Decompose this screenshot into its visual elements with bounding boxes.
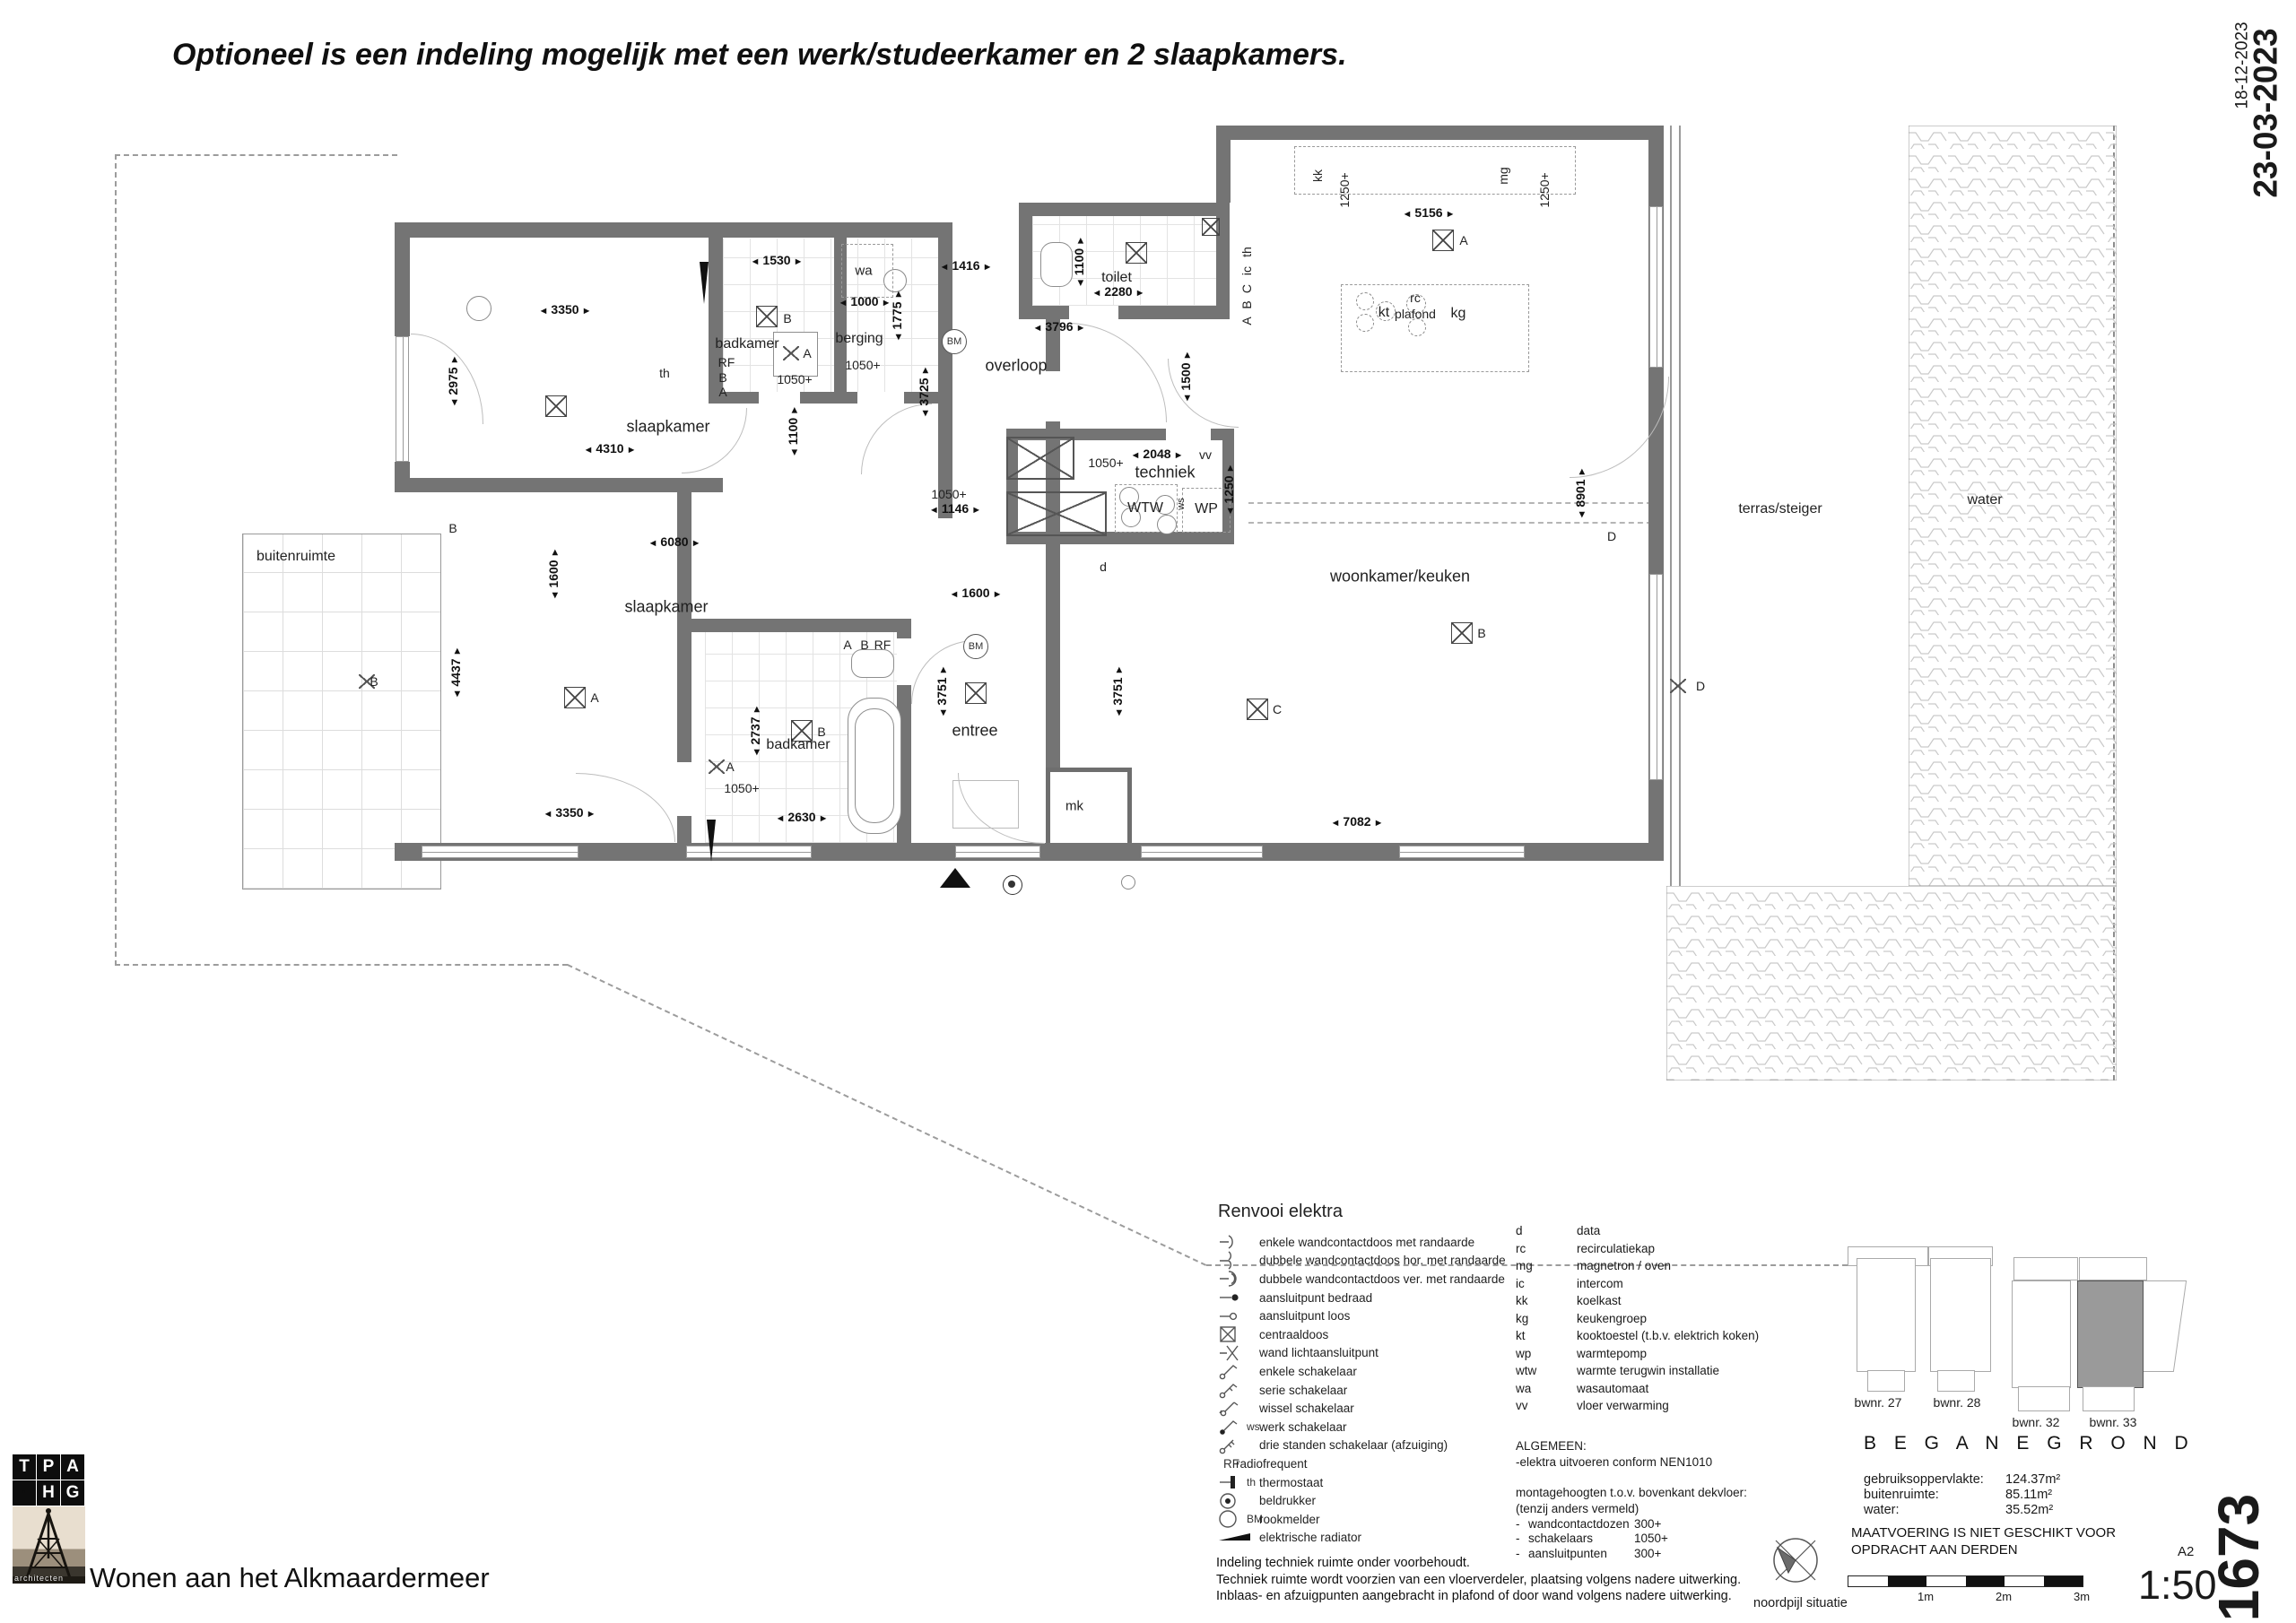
- legend-item-label: werk schakelaar: [1259, 1420, 1347, 1434]
- dimension: 2975: [446, 354, 460, 407]
- scale-bar-segment: [2044, 1576, 2083, 1586]
- legend-item-label: wissel schakelaar: [1259, 1402, 1354, 1415]
- room-label-terras: terras/steiger: [1738, 501, 1822, 517]
- abbreviation-row: rc recirculatiekap: [1516, 1240, 1812, 1258]
- water-hatch: [1666, 886, 2117, 1081]
- bwnr-label: bwnr. 32: [2013, 1415, 2060, 1429]
- area-value: 85.11m²: [2005, 1488, 2052, 1503]
- element: [1220, 1511, 1236, 1527]
- wall: [395, 222, 952, 238]
- element: [1218, 1473, 1248, 1491]
- element: [1218, 1233, 1248, 1251]
- area-label: water:: [1864, 1503, 2005, 1518]
- element: [1221, 1327, 1235, 1341]
- dimension: 2737: [748, 704, 762, 757]
- centraaldoos-icon: [545, 395, 567, 417]
- logo-letter: H: [37, 1480, 60, 1506]
- area-label: buitenruimte:: [1864, 1488, 2005, 1503]
- radiator-icon: [1218, 1531, 1259, 1545]
- element: [1220, 1236, 1232, 1248]
- window: [396, 336, 409, 462]
- toilet-fixture: [1040, 242, 1073, 287]
- situatie-block: [2013, 1257, 2078, 1280]
- scale-bar-segment: [1888, 1576, 1927, 1586]
- element: [1220, 1393, 1224, 1397]
- switch-label: B: [448, 521, 457, 535]
- bathtub-inner: [855, 708, 894, 823]
- height-label: 1050+: [777, 372, 812, 386]
- situatie-block: [2012, 1280, 2071, 1388]
- window: [1141, 846, 1263, 858]
- abbreviation-code: rc: [1516, 1242, 1577, 1255]
- window: [422, 846, 578, 858]
- water-hatch: [1909, 126, 2117, 886]
- switch-3pos-icon: [1218, 1436, 1259, 1455]
- element: [1231, 1313, 1237, 1319]
- element: [1218, 1307, 1248, 1325]
- boundary-line: [115, 154, 117, 966]
- dimension: 2048: [1130, 447, 1183, 461]
- centraaldoos-label: A: [1459, 233, 1467, 247]
- legend-item-label: dubbele wandcontactdoos ver. met randaar…: [1259, 1272, 1505, 1286]
- thermostat-label: th: [1239, 247, 1254, 257]
- dash-ch: -: [1516, 1516, 1528, 1532]
- element: [1218, 1380, 1248, 1400]
- legend-item-label: rookmelder: [1259, 1513, 1320, 1526]
- scale-bar-segment: [1926, 1576, 1966, 1586]
- terrace-edge: [1670, 126, 1672, 886]
- legend-title: Renvooi elektra: [1218, 1202, 1837, 1222]
- situatie-unit-33-highlight: [2077, 1280, 2144, 1388]
- switch-label: C: [1239, 284, 1254, 293]
- window: [1649, 206, 1663, 368]
- dimension: 6080: [648, 534, 700, 549]
- legend-item-label: enkele wandcontactdoos met randaarde: [1259, 1236, 1474, 1249]
- room-label-badkamer1: badkamer: [715, 336, 778, 352]
- shaft-icon: [1006, 491, 1107, 536]
- legend-item-label: aansluitpunt loos: [1259, 1309, 1350, 1323]
- element: [1220, 1375, 1224, 1379]
- boundary-line: [567, 964, 1206, 1266]
- dimension: 3796: [1032, 319, 1085, 334]
- abbreviation-row: wa wasautomaat: [1516, 1380, 1812, 1398]
- door-opening: [759, 392, 800, 404]
- scale-bar-segment: [1848, 1576, 1888, 1586]
- wall-light-label: D: [1696, 679, 1705, 693]
- smoke-detector-icon: BM: [942, 329, 967, 354]
- door-swing: [1067, 323, 1167, 422]
- switch-label: A: [1239, 317, 1254, 325]
- room-label-badkamer2: badkamer: [766, 737, 830, 753]
- centraaldoos-icon: [1126, 242, 1147, 264]
- switch-label: B: [1239, 300, 1254, 308]
- door-opening: [1069, 306, 1118, 319]
- switch-label: B: [860, 638, 868, 652]
- center-line: [1248, 522, 1652, 524]
- disclaimer: MAATVOERING IS NIET GESCHIKT VOOR OPDRAC…: [1851, 1524, 2116, 1558]
- marker-dot: [1121, 875, 1135, 890]
- element: [1218, 1509, 1248, 1529]
- dimension: 3751: [935, 664, 949, 717]
- abbreviation-code: ic: [1516, 1277, 1577, 1290]
- footnotes: Indeling techniek ruimte onder voorbehou…: [1216, 1555, 1741, 1605]
- element: [1218, 1251, 1248, 1271]
- legend-item-label: radiofrequent: [1236, 1457, 1308, 1471]
- abbreviation-code: kg: [1516, 1312, 1577, 1325]
- intercom-label: ic: [1239, 266, 1254, 275]
- dimension: 3350: [538, 302, 591, 317]
- area-label: gebruiksoppervlakte:: [1864, 1472, 2005, 1488]
- abbreviation-row: vv vloer verwarming: [1516, 1397, 1812, 1415]
- abbreviation-code: kk: [1516, 1294, 1577, 1307]
- wall-light-icon: [783, 346, 799, 360]
- legend-item-label: centraaldoos: [1259, 1328, 1328, 1341]
- abbreviation-meaning: koelkast: [1577, 1294, 1622, 1307]
- legend-item-label: thermostaat: [1259, 1476, 1323, 1489]
- switch-series-icon: [1218, 1380, 1259, 1400]
- situatie-block: [2083, 1386, 2135, 1411]
- switch-label: RF: [718, 355, 735, 369]
- room-label-woonkamer: woonkamer/keuken: [1330, 568, 1470, 586]
- dimension: 5156: [1402, 205, 1455, 220]
- door-swing: [958, 773, 1045, 844]
- room-label-slaapkamer1: slaapkamer: [626, 418, 709, 437]
- dimension: 1100: [1072, 236, 1086, 288]
- legend-item-label: beldrukker: [1259, 1494, 1316, 1507]
- dimension: 8901: [1573, 466, 1587, 519]
- abbreviation-code: vv: [1516, 1399, 1577, 1412]
- wall-light-icon: [1218, 1344, 1259, 1362]
- dimension: 1416: [939, 258, 992, 273]
- logo-letter: T: [13, 1454, 36, 1480]
- element: [1218, 1436, 1248, 1455]
- centraaldoos-label: B: [783, 311, 791, 325]
- height-label: 1250+: [1537, 172, 1552, 207]
- bwnr-label: bwnr. 28: [1934, 1395, 1981, 1410]
- dimension: 1600: [546, 547, 561, 600]
- abbreviation-code: d: [1516, 1224, 1577, 1237]
- scale-bar-label: 1m: [1918, 1590, 1934, 1603]
- centraaldoos-icon: [1432, 230, 1454, 251]
- room-label-water: water: [1967, 492, 2002, 508]
- abbreviation-row: kt kooktoestel (t.b.v. elektrich koken): [1516, 1327, 1812, 1345]
- dimension: 1146: [929, 501, 981, 516]
- kitchen-code-kg: kg: [1451, 306, 1466, 322]
- dimension: 3751: [1110, 664, 1125, 717]
- element: [46, 1508, 51, 1514]
- dimension: 2280: [1091, 284, 1144, 299]
- abbreviation-meaning: intercom: [1577, 1277, 1623, 1290]
- dimension: 1530: [750, 253, 803, 267]
- switch-label: A: [718, 385, 726, 399]
- kitchen-code-kt: kt: [1378, 305, 1389, 321]
- element: [1516, 1470, 1747, 1485]
- element: [1225, 1498, 1231, 1504]
- cooktop-burner: [1356, 314, 1374, 332]
- element: [1231, 1476, 1235, 1488]
- abbreviation-code: mg: [1516, 1259, 1577, 1272]
- dimension: 1000: [838, 294, 891, 308]
- abbreviation-meaning: vloer verwarming: [1577, 1399, 1669, 1412]
- centraaldoos-icon: [1247, 699, 1268, 720]
- room-label-overloop: overloop: [985, 357, 1047, 376]
- legend-item-label: serie schakelaar: [1259, 1384, 1347, 1397]
- element: [1218, 1325, 1248, 1343]
- element: [1224, 1421, 1237, 1430]
- element: OPDRACHT AAN DERDEN: [1851, 1541, 2116, 1558]
- abbreviation-meaning: warmtepomp: [1577, 1347, 1647, 1360]
- north-compass-icon: [1769, 1533, 1822, 1587]
- centraaldoos-label: C: [1273, 702, 1282, 716]
- architect-logo: TPA ·HG architecten: [13, 1454, 86, 1584]
- wall-light-label: A: [726, 759, 734, 774]
- element: [1218, 1344, 1248, 1362]
- element: TPA: [13, 1454, 86, 1480]
- area-row: gebruiksoppervlakte: 124.37m²: [1864, 1472, 2060, 1488]
- project-name: Wonen aan het Alkmaardermeer: [90, 1562, 490, 1594]
- situatie-block: [2018, 1386, 2070, 1411]
- abbreviation-code: kt: [1516, 1329, 1577, 1342]
- dimension: 1600: [949, 586, 1002, 600]
- wall: [395, 238, 410, 336]
- wall-light-label: B: [370, 674, 378, 689]
- room-label-mk: mk: [1065, 799, 1083, 814]
- dimension: 3350: [543, 805, 596, 820]
- element: [1218, 1361, 1248, 1381]
- abbreviation-row: d data: [1516, 1222, 1812, 1240]
- kitchen-code-kk: kk: [1310, 169, 1325, 182]
- kitchen-code-rc: rc: [1410, 291, 1421, 305]
- boundary-line: [115, 964, 568, 966]
- door-opening: [1166, 429, 1211, 440]
- abbreviation-meaning: wasautomaat: [1577, 1382, 1648, 1395]
- wall: [1019, 216, 1032, 319]
- door-opening: [857, 392, 904, 404]
- floorplan-sheet: { "title": "Optioneel is een indeling mo…: [0, 0, 2296, 1623]
- wall: [1216, 126, 1664, 140]
- element: [1218, 1491, 1248, 1511]
- wtw-duct: [1157, 515, 1177, 534]
- dimension: 2630: [775, 810, 828, 824]
- centraaldoos-icon: [965, 682, 987, 704]
- window: [686, 846, 812, 858]
- tower-silhouette-icon: [13, 1506, 85, 1584]
- footnote: Inblaas- en afzuigpunten aangebracht in …: [1216, 1588, 1741, 1605]
- radiator-icon: [700, 262, 709, 304]
- scale-bar-segment: [2005, 1576, 2044, 1586]
- height-label: 1250+: [1337, 172, 1352, 207]
- kitchen-code-mg: mg: [1496, 167, 1510, 184]
- bwnr-label: bwnr. 27: [1855, 1395, 1902, 1410]
- area-table: gebruiksoppervlakte: 124.37m² buitenruim…: [1864, 1472, 2060, 1518]
- wall: [1019, 306, 1230, 319]
- wall: [1019, 203, 1230, 216]
- abbreviation-row: kk koelkast: [1516, 1292, 1812, 1310]
- room-label-entree: entree: [952, 722, 997, 741]
- footnote: Indeling techniek ruimte onder voorbehou…: [1216, 1555, 1741, 1572]
- logo-letter: P: [37, 1454, 60, 1480]
- window: [1399, 846, 1525, 858]
- general-line: -elektra uitvoeren conform NEN1010: [1516, 1454, 1747, 1471]
- situatie-block: [1930, 1258, 1991, 1372]
- element: [1218, 1270, 1248, 1288]
- switch-change-icon: [1218, 1399, 1259, 1419]
- room-label-slaapkamer2: slaapkamer: [624, 598, 708, 617]
- wall: [1216, 140, 1231, 203]
- data-point-label: d: [1100, 560, 1107, 574]
- element: [48, 1514, 70, 1578]
- area-value: 35.52m²: [2005, 1503, 2053, 1518]
- height-label: 1050+: [845, 358, 880, 372]
- situatie-block: [2079, 1257, 2147, 1280]
- general-notes: ALGEMEEN: -elektra uitvoeren conform NEN…: [1516, 1438, 1747, 1561]
- dash-ch: -: [1516, 1531, 1528, 1547]
- socket-double-h-icon: [1218, 1251, 1259, 1271]
- scale-bar-segment: [1966, 1576, 2005, 1586]
- area-row: water: 35.52m²: [1864, 1503, 2060, 1518]
- area-value: 124.37m²: [2005, 1472, 2060, 1488]
- abbreviation-meaning: warmte terugwin installatie: [1577, 1364, 1719, 1377]
- switch-label: A: [843, 638, 851, 652]
- kitchen-code-plafond: plafond: [1395, 307, 1436, 321]
- height-row: - schakelaars 1050+: [1516, 1532, 1747, 1547]
- abbreviation-meaning: data: [1577, 1224, 1600, 1237]
- cooktop-burner: [1356, 292, 1374, 310]
- abbreviation-code: wp: [1516, 1347, 1577, 1360]
- element: [1666, 886, 2117, 1081]
- switch-label: B: [718, 370, 726, 385]
- wall: [709, 392, 947, 404]
- wp-label: WP: [1195, 501, 1218, 517]
- dimension: 1250: [1222, 463, 1236, 516]
- wall: [1046, 544, 1060, 769]
- abbreviation-code: wa: [1516, 1382, 1577, 1395]
- vv-label: vv: [1199, 447, 1212, 462]
- point-wired-icon: [1218, 1289, 1259, 1306]
- abbreviation-row: kg keukengroep: [1516, 1310, 1812, 1328]
- abbreviation-meaning: magnetron / oven: [1577, 1259, 1671, 1272]
- situatie-block: [1867, 1370, 1905, 1392]
- height-item-label: wandcontactdozen: [1528, 1516, 1634, 1532]
- general-heading: ALGEMEEN:: [1516, 1438, 1747, 1454]
- wall-light-icon: [709, 759, 725, 774]
- boundary-line: [115, 154, 397, 156]
- point-empty-icon: [1218, 1307, 1259, 1325]
- element: [1218, 1399, 1248, 1419]
- dimension: 1500: [1178, 350, 1193, 403]
- room-label-wa: wa: [855, 264, 872, 279]
- switch-single-icon: [1218, 1361, 1259, 1381]
- center-line: [1248, 502, 1652, 504]
- legend-item-label: wand lichtaansluitpunt: [1259, 1346, 1378, 1359]
- centraaldoos-label: A: [590, 690, 598, 705]
- height-label: 1050+: [724, 781, 759, 795]
- floor-title: B E G A N E G R O N D: [1864, 1433, 2195, 1454]
- area-row: buitenruimte: 85.11m²: [1864, 1488, 2060, 1503]
- element: [1219, 1533, 1250, 1541]
- wall-light-icon: [1670, 679, 1686, 693]
- centraaldoos-icon: [756, 306, 778, 327]
- logo-photo: architecten: [13, 1506, 85, 1584]
- entrance-door: [955, 846, 1040, 858]
- height-label: 1050+: [1088, 456, 1123, 470]
- room-label-techniek: techniek: [1135, 464, 1195, 482]
- dimension: 4310: [583, 441, 636, 456]
- window: [1649, 574, 1663, 780]
- general-line: (tenzij anders vermeld): [1516, 1501, 1747, 1517]
- wall: [395, 478, 723, 492]
- toilet-fixture: [851, 649, 894, 678]
- terrace-edge: [1679, 126, 1681, 886]
- dimension: 1775: [890, 289, 904, 342]
- centraaldoos-icon: [1218, 1325, 1259, 1343]
- element: [1220, 1429, 1225, 1435]
- room-label-berging: berging: [835, 331, 883, 347]
- abbreviation-meaning: kooktoestel (t.b.v. elektrich koken): [1577, 1329, 1759, 1342]
- buitenruimte-area: [242, 534, 441, 890]
- element: [1220, 1271, 1236, 1286]
- logo-tile-blank: ·: [13, 1480, 36, 1506]
- logo-letter: A: [61, 1454, 84, 1480]
- height-label: 1050+: [931, 487, 966, 501]
- dimension: 3725: [917, 365, 931, 418]
- wall: [691, 619, 911, 632]
- abbreviation-row: ic intercom: [1516, 1275, 1812, 1293]
- legend-row: ws werk schakelaar: [1218, 1418, 1837, 1436]
- element: [1221, 1410, 1225, 1415]
- situatie-block: [1857, 1258, 1916, 1372]
- element: [1220, 1346, 1238, 1360]
- scale-bar-label: 3m: [2074, 1590, 2090, 1603]
- element: [1218, 1417, 1248, 1436]
- centraaldoos-label: B: [1477, 626, 1485, 640]
- legend-item-label: drie standen schakelaar (afzuiging): [1259, 1438, 1448, 1452]
- footnote: Techniek ruimte wordt voorzien van een v…: [1216, 1572, 1741, 1589]
- element: [1224, 1440, 1234, 1449]
- height-item-label: schakelaars: [1528, 1531, 1634, 1547]
- situatie-block: [1937, 1370, 1975, 1392]
- legend-item-label: elektrische radiator: [1259, 1531, 1361, 1544]
- abbreviation-row: mg magnetron / oven: [1516, 1257, 1812, 1275]
- abbreviation-code: wtw: [1516, 1364, 1577, 1377]
- marker-dot-fill: [1008, 881, 1015, 888]
- ws-label: ws: [1176, 498, 1187, 509]
- height-row: - wandcontactdozen 300+: [1516, 1516, 1747, 1532]
- height-item-value: 300+: [1634, 1516, 1661, 1532]
- door-opening: [897, 638, 911, 685]
- hood-point: [1408, 318, 1426, 336]
- element: [1218, 1531, 1254, 1545]
- wall-light-label: A: [803, 346, 811, 360]
- meterkast: [1046, 768, 1132, 852]
- socket-single-icon: [1218, 1233, 1259, 1251]
- element: ·HG: [13, 1480, 86, 1506]
- thermostat-label: th: [659, 366, 670, 380]
- entrance-arrow-icon: [940, 868, 970, 888]
- element: [1220, 1448, 1224, 1453]
- general-line: montagehoogten t.o.v. bovenkant dekvloer…: [1516, 1485, 1747, 1501]
- logo-letter: G: [61, 1480, 84, 1506]
- abbreviation-meaning: keukengroep: [1577, 1312, 1647, 1325]
- abbreviation-row: wtw warmte terugwin installatie: [1516, 1362, 1812, 1380]
- socket-double-v-icon: [1218, 1270, 1259, 1288]
- legend-item-label: enkele schakelaar: [1259, 1365, 1357, 1378]
- scale-bar: [1848, 1575, 2083, 1587]
- centraaldoos-label: B: [817, 725, 825, 739]
- element: [1220, 1252, 1231, 1269]
- door-opening: [677, 762, 691, 816]
- dimension: 1100: [786, 405, 800, 457]
